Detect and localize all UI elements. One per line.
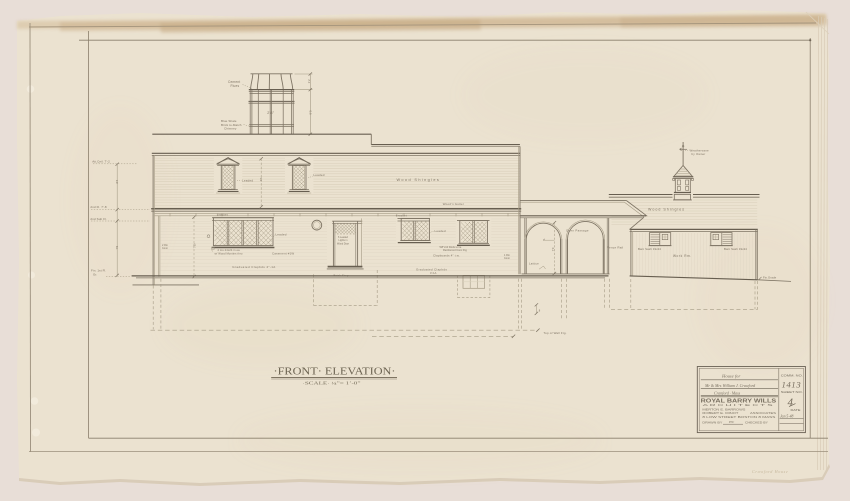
svg-text:Leaded: Leaded <box>435 229 446 233</box>
svg-text:Lattice: Lattice <box>529 261 539 265</box>
svg-text:1’2: 1’2 <box>307 79 311 83</box>
svg-text:Chimney: Chimney <box>224 126 237 130</box>
svg-text:Flues: Flues <box>231 84 240 88</box>
svg-text:8 LOW STREET BOSTON 8 MASS: 8 LOW STREET BOSTON 8 MASS <box>702 415 775 419</box>
svg-text:8’4: 8’4 <box>115 179 119 183</box>
svg-text:8’0: 8’0 <box>309 110 313 114</box>
svg-text:Att.Ceil. 7’-2: Att.Ceil. 7’-2 <box>92 160 110 164</box>
svg-text:Casement #1W: Casement #1W <box>272 251 294 255</box>
svg-text:Leaded: Leaded <box>275 232 286 236</box>
svg-text:2’8”: 2’8” <box>267 111 274 115</box>
svg-text:Top of Wall Ftg.: Top of Wall Ftg. <box>544 331 567 335</box>
svg-text:4: 4 <box>788 397 794 409</box>
svg-text:Leaded: Leaded <box>242 178 253 182</box>
svg-text:2nd Fl. 7’-8: 2nd Fl. 7’-8 <box>90 205 106 209</box>
svg-text:2 Lts 24x24 in ea: 2 Lts 24x24 in ea <box>218 248 241 252</box>
svg-text:Crawford House: Crawford House <box>752 469 788 474</box>
svg-text:Fin.Grade: Fin.Grade <box>763 276 777 280</box>
svg-text:DRAWN BY: DRAWN BY <box>702 421 722 424</box>
svg-text:Graduated Clapbds 4”-1A: Graduated Clapbds 4”-1A <box>232 265 275 269</box>
svg-text:4’6: 4’6 <box>259 177 263 181</box>
svg-text:Barn Sash 19x24: Barn Sash 19x24 <box>724 247 747 251</box>
svg-text:CHECKED BY: CHECKED BY <box>745 421 768 424</box>
svg-text:A R C H I T E C T S: A R C H I T E C T S <box>703 403 773 407</box>
svg-text:Wood Shingles: Wood Shingles <box>648 208 685 212</box>
svg-text:Cranford · Mass: Cranford · Mass <box>714 390 741 395</box>
svg-text:Fence Rail: Fence Rail <box>607 245 623 249</box>
svg-text:Leaded: Leaded <box>313 173 324 177</box>
svg-text:7’10: 7’10 <box>193 243 197 248</box>
svg-text:ASSOCIATES: ASSOCIATES <box>750 411 776 415</box>
svg-text:7’0: 7’0 <box>551 247 555 251</box>
svg-text:Conn: Conn <box>162 247 169 250</box>
svg-text:2nd Sub Fl.: 2nd Sub Fl. <box>90 217 107 221</box>
svg-text:ROBERT E. MINOT: ROBERT E. MINOT <box>702 411 739 415</box>
svg-text:MERTON E. BARROWS: MERTON E. BARROWS <box>702 407 745 411</box>
svg-text:·SCALE· ¼”= 1’-0”: ·SCALE· ¼”= 1’-0” <box>303 380 361 385</box>
svg-text:COMM. NO.: COMM. NO. <box>781 373 803 377</box>
svg-text:DATE: DATE <box>791 408 801 412</box>
svg-text:by Owner: by Owner <box>692 152 706 156</box>
svg-text:1413: 1413 <box>782 380 802 390</box>
svg-text:SHEET NO.: SHEET NO. <box>781 390 803 394</box>
svg-text:Mr & Mrs William J. Crawford: Mr & Mrs William J. Crawford <box>704 383 756 388</box>
svg-text:Gr.: Gr. <box>93 273 97 277</box>
svg-text:Wood Door: Wood Door <box>337 242 349 245</box>
svg-text:Barn Sash 19x24: Barn Sash 19x24 <box>638 247 661 251</box>
svg-text:4”-1A: 4”-1A <box>430 271 437 275</box>
svg-text:Jan 5-48: Jan 5-48 <box>780 414 793 418</box>
svg-text:Reinforced Conc Ftg: Reinforced Conc Ftg <box>443 248 467 252</box>
svg-text:·FRONT· ELEVATION·: ·FRONT· ELEVATION· <box>274 365 396 377</box>
svg-text:7’6: 7’6 <box>115 245 119 249</box>
svg-text:Clapboards 4” t.w.: Clapboards 4” t.w. <box>433 253 460 257</box>
svg-text:w/ Wood Muntins thru: w/ Wood Muntins thru <box>215 251 243 255</box>
svg-text:Work Rm.: Work Rm. <box>673 254 692 258</box>
svg-text:Wood Shingles: Wood Shingles <box>397 178 441 182</box>
svg-text:Conn: Conn <box>504 257 511 260</box>
svg-text:Bracket: Bracket <box>217 213 228 217</box>
svg-text:Open Passage: Open Passage <box>566 229 589 233</box>
svg-text:Wood’n Gutter: Wood’n Gutter <box>443 202 464 206</box>
svg-text:House for: House for <box>721 374 740 379</box>
svg-text:Bracket: Bracket <box>396 214 407 218</box>
